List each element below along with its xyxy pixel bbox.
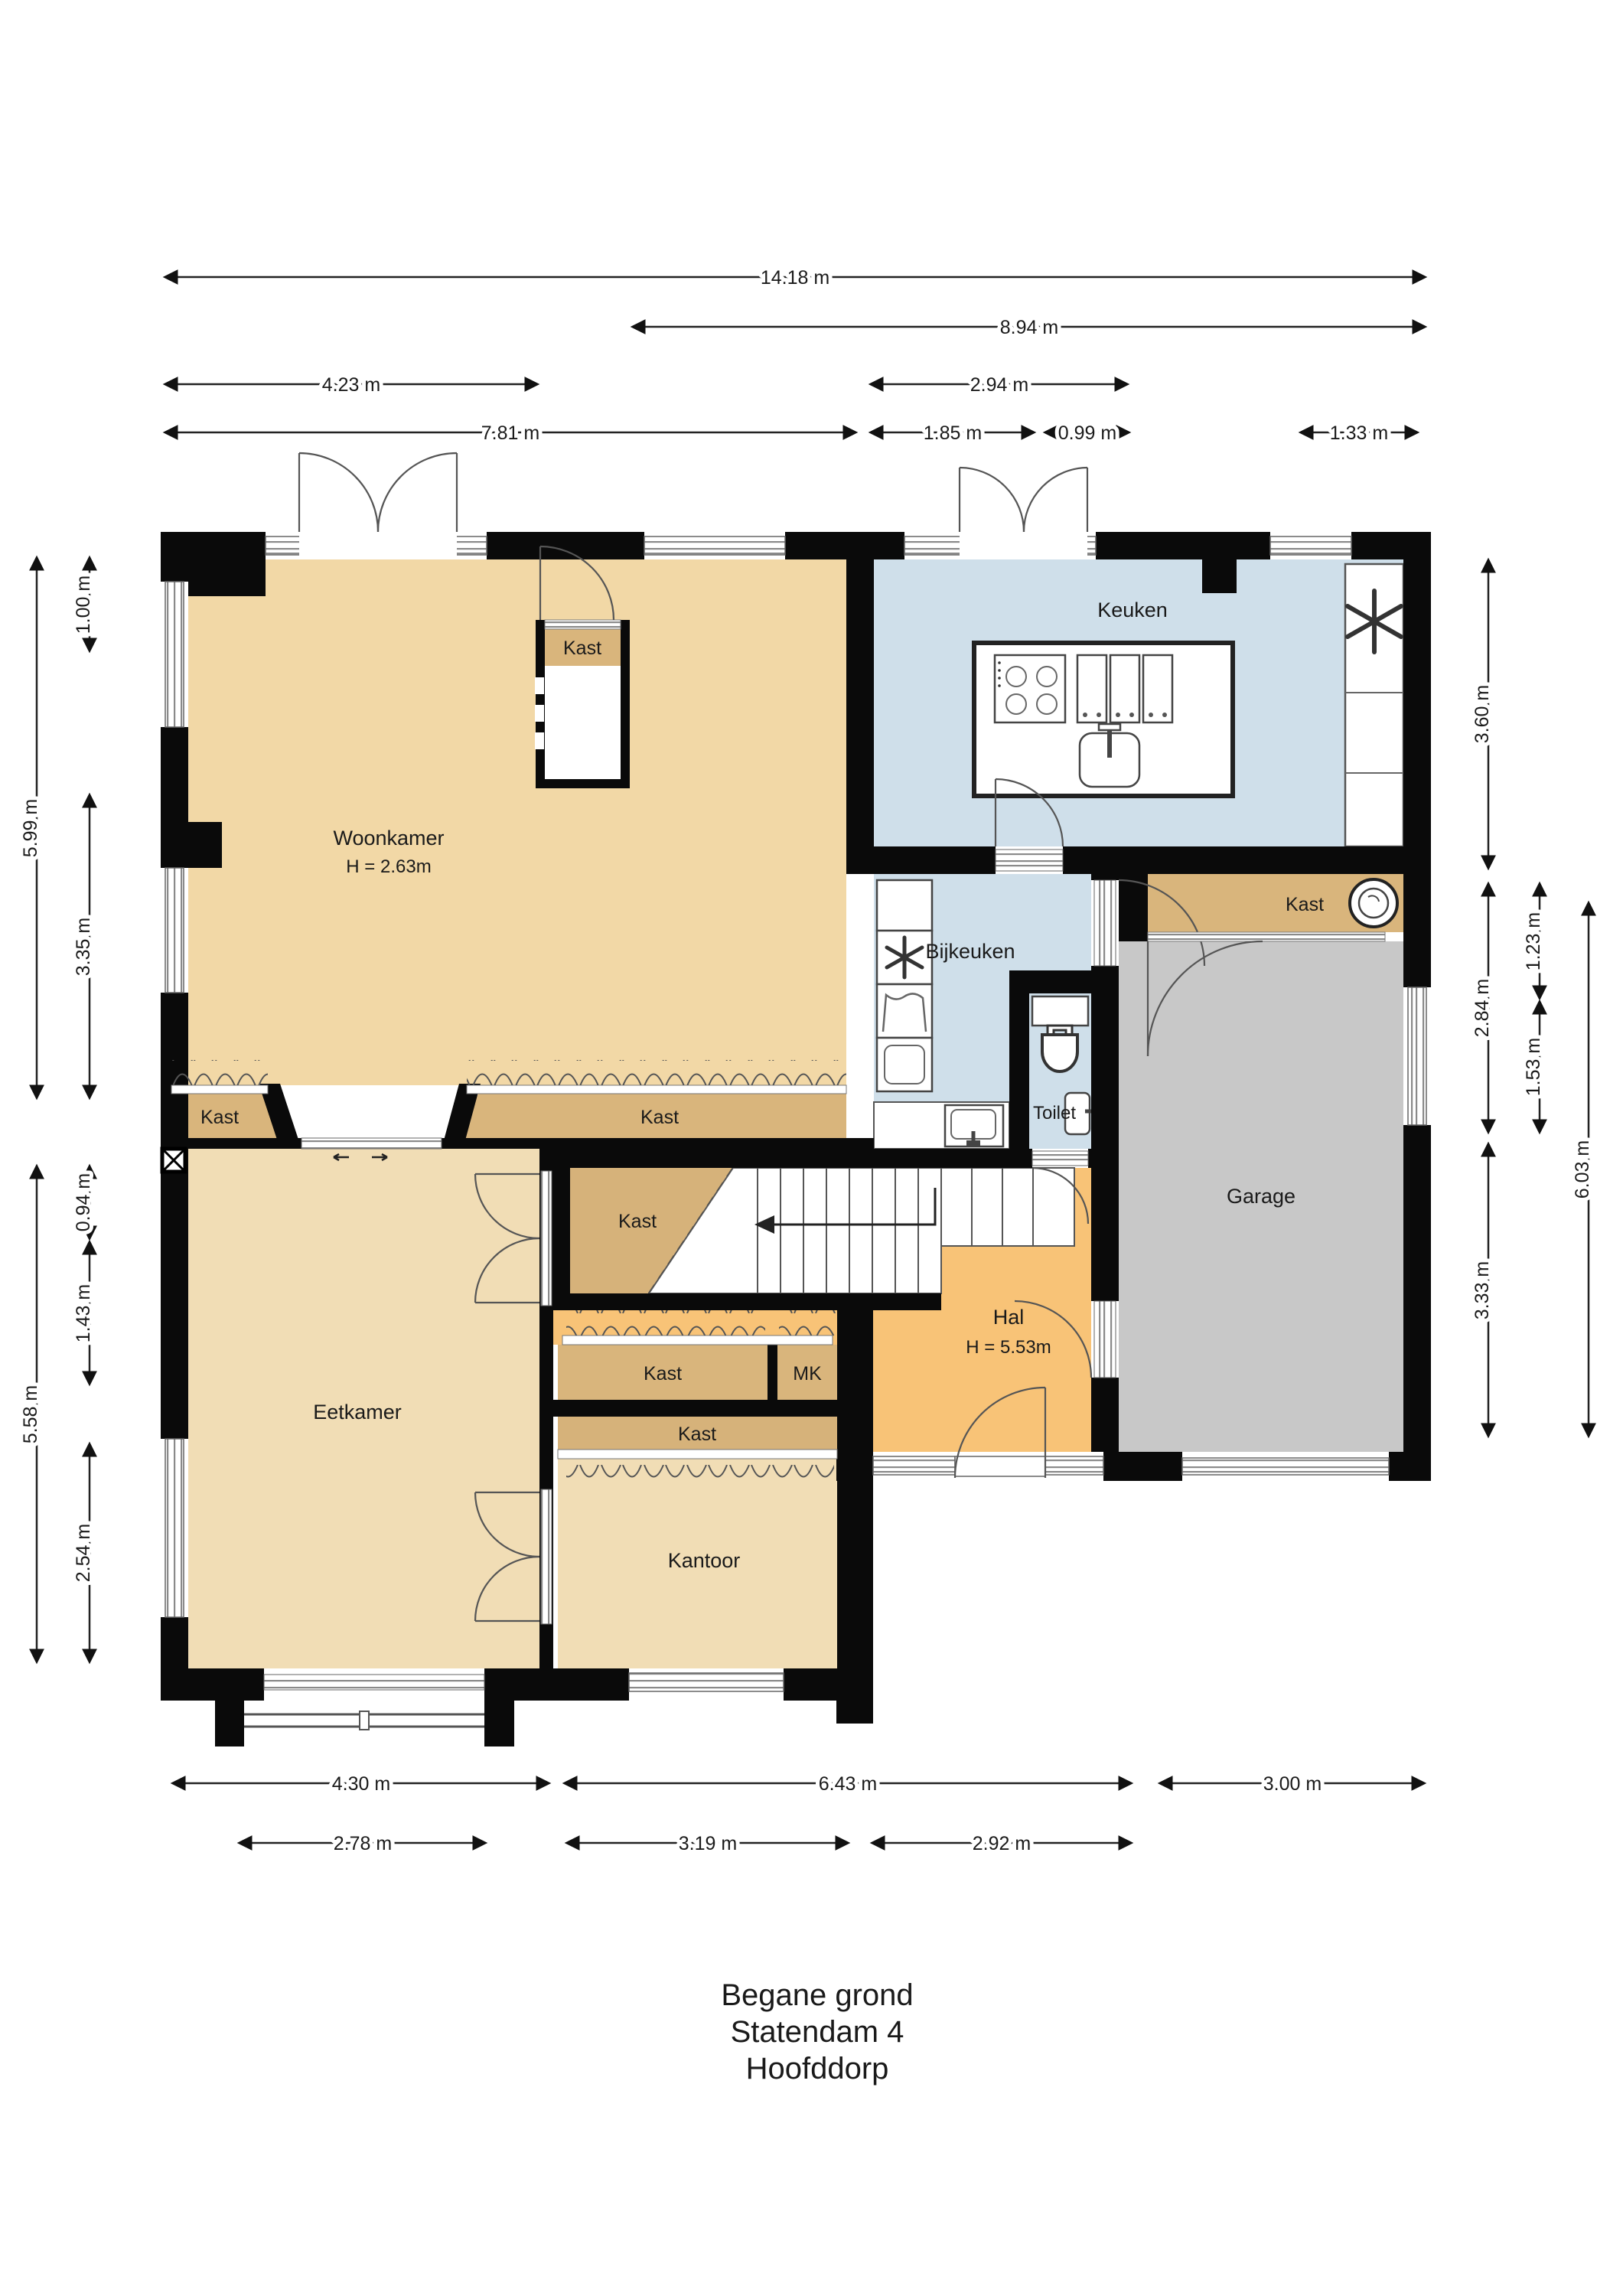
dim-right-3: 1.23 m [1523,884,1544,998]
svg-text:5.99 m: 5.99 m [20,799,41,857]
svg-text:3.00 m: 3.00 m [1263,1773,1322,1795]
room-label-kantoor: Kantoor [668,1549,741,1572]
svg-text:2.54 m: 2.54 m [73,1524,94,1582]
room-label-keuken: Keuken [1097,598,1168,621]
closet-label-kantoor-row: Kast [678,1424,716,1445]
dim-bottom-4: 3.19 m [567,1833,848,1854]
dim-right-4: 1.53 m [1523,1002,1544,1132]
closet-label-left: Kast [200,1107,239,1128]
closet-label-wall: Kast [640,1107,679,1128]
svg-text:1.53 m: 1.53 m [1523,1038,1544,1096]
room-height-hal: H = 5.53m [966,1337,1051,1358]
window [1045,1456,1103,1475]
appliance-box [877,880,932,931]
porch [215,1701,514,1746]
dim-top-4: 7.81 m [165,422,855,444]
room-label-toilet: Toilet [1033,1103,1076,1124]
room-opening [301,1138,442,1149]
window [165,582,184,727]
svg-text:1.33 m: 1.33 m [1330,422,1388,444]
window [1408,987,1426,1125]
svg-text:1.85 m: 1.85 m [924,422,982,444]
room-height-woonkamer: H = 2.63m [346,856,431,877]
svg-text:1.23 m: 1.23 m [1523,912,1544,970]
title-block: Begane grond Statendam 4 Hoofddorp [721,1978,913,2086]
title-address: Statendam 4 [731,2015,904,2049]
island-units [1077,655,1172,722]
title-floor: Begane grond [721,1978,913,2012]
closet-label-garage: Kast [1286,894,1324,915]
svg-text:0.99 m: 0.99 m [1058,422,1116,444]
window [644,536,785,555]
dim-left-3: 5.58 m [20,1166,41,1662]
dim-left-0: 5.99 m [20,558,41,1097]
garage-door [1182,1458,1389,1475]
dim-right-0: 3.60 m [1471,560,1493,868]
svg-text:6.43 m: 6.43 m [819,1773,877,1795]
svg-text:5.58 m: 5.58 m [20,1385,41,1443]
closet-label-hal-row: Kast [644,1363,682,1384]
closet-label-center: Kast [563,638,601,659]
room-woonkamer [188,559,846,1085]
room-label-bijkeuken: Bijkeuken [925,940,1015,963]
dim-right-1: 2.84 m [1471,884,1493,1132]
meter-cupboard-label: MK [793,1363,822,1384]
svg-text:2.92 m: 2.92 m [973,1833,1031,1854]
floorplan-page: Woonkamer H = 2.63m Keuken Bijkeuken Toi… [0,0,1623,2296]
dim-bottom-5: 2.92 m [872,1833,1131,1854]
svg-text:6.03 m: 6.03 m [1572,1140,1593,1199]
window [629,1673,784,1691]
room-label-garage: Garage [1227,1185,1295,1208]
french-door [299,453,457,557]
svg-text:0.94 m: 0.94 m [73,1173,94,1231]
window [165,868,184,993]
window [873,1456,955,1475]
dim-left-4: 0.94 m [73,1166,94,1238]
cooktop-icon [995,655,1065,722]
svg-text:2.94 m: 2.94 m [970,374,1028,396]
dim-top-3: 2.94 m [871,374,1127,396]
svg-text:3.33 m: 3.33 m [1471,1261,1493,1319]
title-city: Hoofddorp [746,2052,889,2086]
room-label-hal: Hal [993,1306,1025,1329]
dim-top-1: 8.94 m [633,317,1425,338]
closet-label-under-stairs: Kast [618,1211,657,1232]
dim-left-6: 2.54 m [73,1444,94,1662]
dim-top-0: 14.18 m [165,267,1425,289]
svg-text:14.18 m: 14.18 m [761,267,829,289]
dim-left-1: 1.00 m [73,558,94,651]
dim-left-2: 3.35 m [73,795,94,1097]
column-box-icon [162,1149,185,1172]
svg-text:1.43 m: 1.43 m [73,1284,94,1342]
dim-top-5: 1.85 m [871,422,1034,444]
dim-bottom-1: 6.43 m [565,1773,1131,1795]
dim-bottom-2: 3.00 m [1160,1773,1424,1795]
dim-top-7: 1.33 m [1301,422,1417,444]
glazed-partition [541,1489,552,1624]
sink-icon [1080,724,1139,787]
french-door [960,468,1087,557]
dim-top-6: 0.99 m [1045,422,1129,444]
stairs-landing [941,1168,1074,1246]
dim-right-2: 3.33 m [1471,1144,1493,1436]
window [1270,536,1351,555]
sliding-opening [264,1675,484,1690]
kitchen-island [974,643,1233,796]
svg-text:4.23 m: 4.23 m [322,374,380,396]
dim-right-5: 6.03 m [1572,903,1593,1436]
svg-text:1.00 m: 1.00 m [73,576,94,634]
window [165,1439,184,1617]
svg-text:7.81 m: 7.81 m [481,422,539,444]
dim-top-2: 4.23 m [165,374,537,396]
sink-icon [945,1105,1003,1146]
svg-text:2.84 m: 2.84 m [1471,979,1493,1037]
dim-bottom-3: 2.78 m [240,1833,485,1854]
dim-left-5: 1.43 m [73,1242,94,1384]
room-label-eetkamer: Eetkamer [313,1401,402,1424]
room-label-woonkamer: Woonkamer [333,827,444,850]
glazed-partition [541,1171,552,1306]
svg-text:3.19 m: 3.19 m [679,1833,737,1854]
svg-text:8.94 m: 8.94 m [1000,317,1058,338]
floorplan-canvas: Woonkamer H = 2.63m Keuken Bijkeuken Toi… [0,0,1623,2296]
svg-text:4.30 m: 4.30 m [332,1773,390,1795]
svg-text:2.78 m: 2.78 m [334,1833,392,1854]
dim-bottom-0: 4.30 m [173,1773,549,1795]
svg-text:3.60 m: 3.60 m [1471,685,1493,743]
washing-machine-icon [1350,879,1397,927]
svg-text:3.35 m: 3.35 m [73,918,94,976]
cistern [1032,996,1088,1026]
